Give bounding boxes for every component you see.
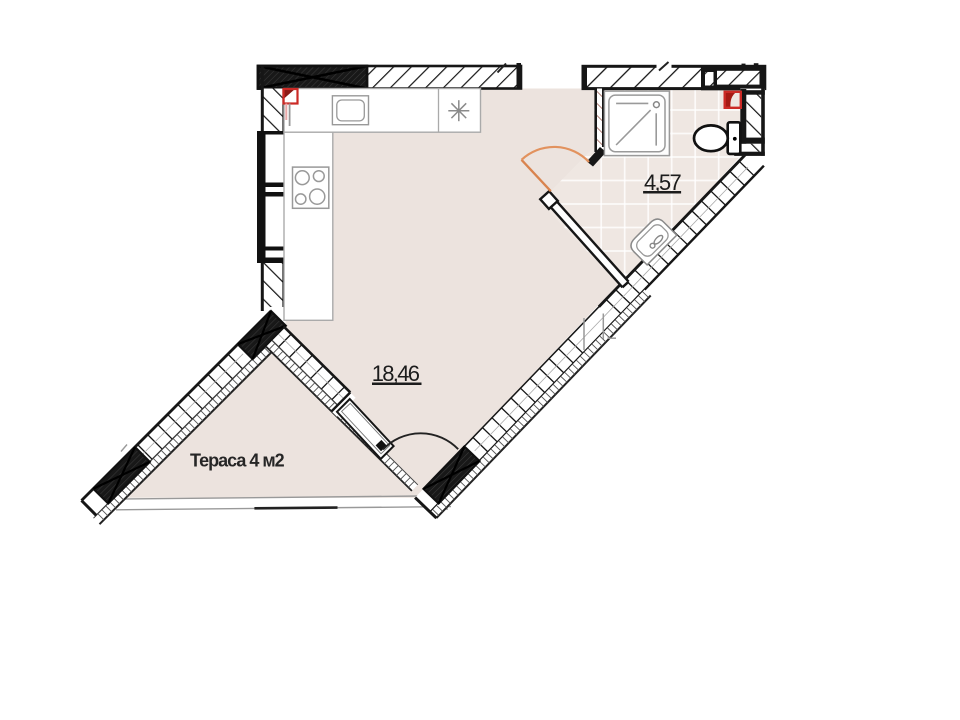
svg-text:Тераса 4 м2: Тераса 4 м2 <box>190 451 285 471</box>
svg-text:18,46: 18,46 <box>372 361 420 386</box>
